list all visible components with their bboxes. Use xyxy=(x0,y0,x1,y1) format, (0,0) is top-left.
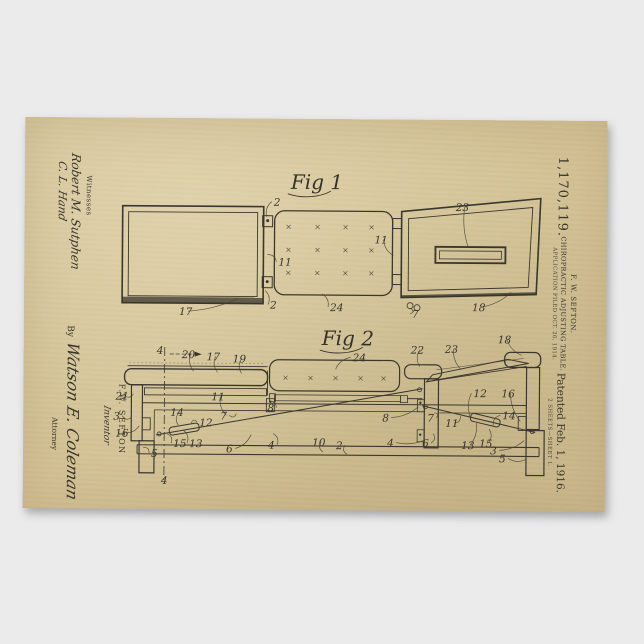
patent-number: 1,170,119. xyxy=(554,157,571,237)
ref-number: 8 xyxy=(267,403,274,415)
attorney-block: By Watson E. Coleman Attorney xyxy=(36,325,83,495)
ref-number: 4 xyxy=(156,345,164,357)
ref-number: 4 xyxy=(386,437,394,449)
leader-line xyxy=(265,291,269,305)
ref-number: 11 xyxy=(374,234,387,246)
attorney-label: Attorney xyxy=(49,417,60,495)
header-title-line: CHIROPRACTIC ADJUSTING TABLE. xyxy=(558,229,569,379)
ref-number: 8 xyxy=(382,412,389,424)
attorney-signature: Watson E. Coleman xyxy=(62,340,83,503)
ref-number: 6 xyxy=(422,438,429,450)
witness-signature: C. L. Hand xyxy=(55,160,69,299)
ref-number: 17 xyxy=(207,351,221,363)
witnesses-label: Witnesses xyxy=(81,175,95,297)
leader-line xyxy=(396,440,425,444)
inventor-name: F.W. SEFTON xyxy=(115,384,128,496)
ref-number: 12 xyxy=(199,417,213,429)
patent-poster: Fig 1211217241123187 xyxy=(23,117,608,512)
ref-number: 18 xyxy=(472,302,486,314)
ref-number: 3 xyxy=(490,445,497,457)
ref-number: 17 xyxy=(179,306,193,318)
figure-label: Fig 2 xyxy=(321,326,374,350)
ref-number: 23 xyxy=(444,344,459,356)
ref-number: 11 xyxy=(445,418,458,430)
header-application-line: APPLICATION FILED OCT. 26, 1914. xyxy=(548,229,559,379)
ref-number: 10 xyxy=(312,437,326,449)
ref-number: 5 xyxy=(151,448,158,460)
ref-number: 2 xyxy=(269,300,277,312)
inventor-label: Inventor xyxy=(100,404,112,446)
ref-number: 6 xyxy=(226,443,233,455)
leader-line xyxy=(391,407,418,418)
ref-number: 16 xyxy=(501,388,515,400)
sheet-count: 2 SHEETS—SHEET 1. xyxy=(543,373,555,493)
patent-header: F. W. SEFTON. CHIROPRACTIC ADJUSTING TAB… xyxy=(549,229,578,379)
witness-signature: Robert M. Sutphen xyxy=(68,152,82,298)
ref-number: 7 xyxy=(220,410,227,422)
ref-number: 24 xyxy=(352,352,366,364)
leader-line xyxy=(229,413,236,417)
leader-line xyxy=(336,357,351,369)
ref-number: 23 xyxy=(455,202,470,214)
ref-number: 7 xyxy=(427,413,434,425)
ref-number: 14 xyxy=(170,407,183,419)
fig2-drawing: Fig 242017192131651412117151364810224222… xyxy=(113,325,545,490)
ref-number: 20 xyxy=(181,349,196,361)
leader-line xyxy=(434,413,437,418)
header-inventor-line: F. W. SEFTON. xyxy=(567,229,578,379)
leader-line xyxy=(499,440,524,450)
ref-number: 5 xyxy=(499,453,506,465)
leader-line xyxy=(235,434,251,448)
ref-number: 4 xyxy=(160,475,168,487)
patent-date-block: Patented Feb. 1, 1916. 2 SHEETS—SHEET 1. xyxy=(545,373,566,493)
witnesses-block: Witnesses Robert M. Sutphen C. L. Hand xyxy=(50,147,95,297)
ref-number: 15 xyxy=(173,438,187,450)
ref-number: 13 xyxy=(189,438,203,450)
ref-number: 11 xyxy=(278,257,291,269)
ref-number: 12 xyxy=(473,388,487,400)
ref-number: 2 xyxy=(273,197,281,209)
ref-number: 2 xyxy=(335,440,343,452)
leader-line xyxy=(322,294,328,307)
by-label: By xyxy=(65,325,75,337)
ref-number: 14 xyxy=(502,410,515,422)
ref-number: 11 xyxy=(211,391,224,403)
inventor-block: F.W. SEFTON Inventor xyxy=(101,384,128,496)
photo-background: Fig 1211217241123187 xyxy=(0,0,644,644)
leader-line xyxy=(431,434,435,443)
ref-number: 22 xyxy=(410,345,425,357)
patented-date: Patented Feb. 1, 1916. xyxy=(554,373,566,493)
ref-number: 4 xyxy=(267,440,275,452)
fig1-drawing: Fig 1211217241123187 xyxy=(122,169,541,322)
figure-label: Fig 1 xyxy=(290,170,343,194)
leader-line xyxy=(143,448,149,453)
leader-line xyxy=(508,458,526,461)
leader-line xyxy=(266,202,272,217)
ref-number: 24 xyxy=(329,302,343,314)
